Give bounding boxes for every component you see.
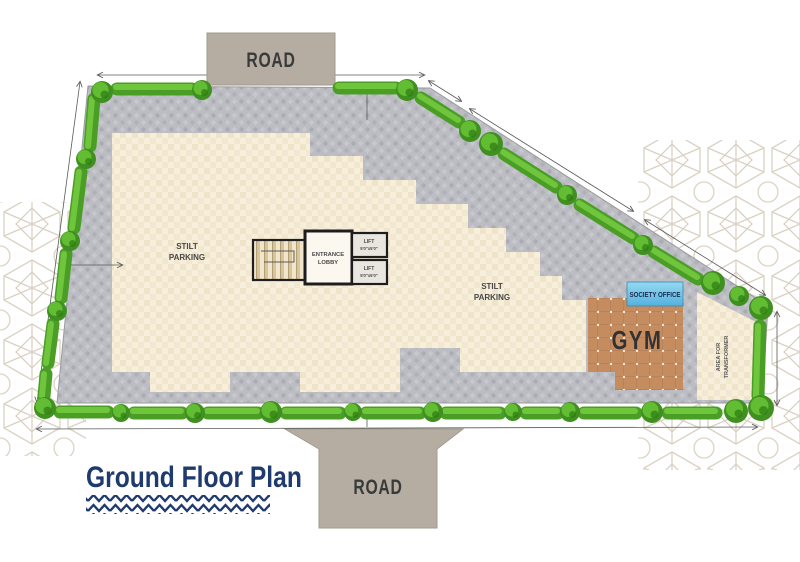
- hedge: [525, 411, 558, 413]
- lift-upper-line1: LIFT: [364, 239, 375, 245]
- hedge: [59, 410, 108, 412]
- hedge: [46, 324, 53, 363]
- tree: [749, 296, 773, 320]
- gym-label: GYM: [612, 326, 663, 355]
- hedge: [285, 411, 340, 413]
- hedge: [42, 374, 46, 396]
- hedge: [338, 86, 396, 88]
- tree: [60, 231, 80, 251]
- hedge: [72, 172, 81, 228]
- tree: [344, 403, 362, 421]
- floor-plan-drawing: AREA FOR TRANSFORMER GYM SOCIETY OFFICE …: [0, 0, 800, 562]
- tree: [459, 120, 481, 142]
- hedge: [667, 411, 716, 413]
- core-block: ENTRANCE LOBBY LIFT 5'0"x5'0" LIFT 5'0"x…: [253, 231, 387, 284]
- hedge: [116, 87, 192, 89]
- floor-plan-page: AREA FOR TRANSFORMER GYM SOCIETY OFFICE …: [0, 0, 800, 562]
- tree: [112, 404, 130, 422]
- stilt-right-line2: PARKING: [474, 293, 510, 302]
- lift-lower-line2: 5'0"x5'0": [360, 273, 378, 278]
- tree: [729, 286, 749, 306]
- tree: [748, 395, 774, 421]
- tree: [504, 403, 522, 421]
- tree: [76, 149, 96, 169]
- tree: [479, 132, 503, 156]
- road-bottom-label: ROAD: [353, 475, 402, 499]
- transformer-line2: TRANSFORMER: [724, 336, 730, 379]
- tree: [192, 80, 212, 100]
- hedge: [756, 326, 760, 396]
- tree: [260, 401, 282, 423]
- staircase: [253, 240, 305, 280]
- road-bottom: ROAD: [285, 429, 463, 528]
- tree: [91, 81, 113, 103]
- hedge: [59, 254, 66, 298]
- stilt-left-line2: PARKING: [169, 253, 205, 262]
- tree: [701, 271, 725, 295]
- hedge: [365, 411, 420, 413]
- hedge: [445, 411, 500, 413]
- tree: [560, 402, 580, 422]
- transformer-line1: AREA FOR: [716, 343, 722, 372]
- lobby-line1: ENTRANCE: [312, 252, 344, 258]
- tree: [633, 235, 653, 255]
- tree: [557, 185, 577, 205]
- tree: [47, 301, 67, 321]
- society-office-label-group: SOCIETY OFFICE: [629, 292, 680, 300]
- lobby-line2: LOBBY: [318, 260, 338, 266]
- lift-upper-line2: 5'0"x5'0": [360, 246, 378, 251]
- lift-lower: [352, 260, 387, 284]
- gym-label-group: GYM: [612, 326, 663, 355]
- hedge: [133, 411, 182, 413]
- title-ornament-band: [86, 495, 270, 514]
- lift-lower-line1: LIFT: [364, 266, 375, 272]
- tree: [396, 79, 418, 101]
- title-block: Ground Floor Plan: [86, 460, 302, 514]
- hedge: [207, 411, 258, 413]
- road-top-label: ROAD: [246, 48, 295, 72]
- stilt-left-line1: STILT: [176, 242, 198, 251]
- road-top: ROAD: [207, 33, 335, 85]
- hedge: [583, 411, 636, 413]
- page-title: Ground Floor Plan: [86, 460, 302, 494]
- tree: [185, 403, 205, 423]
- tree: [423, 402, 443, 422]
- hedge: [88, 99, 94, 146]
- society-office-label: SOCIETY OFFICE: [629, 292, 680, 300]
- stilt-right-line1: STILT: [481, 282, 503, 291]
- tree: [641, 401, 663, 423]
- lift-upper: [352, 233, 387, 257]
- tree: [34, 397, 56, 419]
- tree: [724, 399, 748, 423]
